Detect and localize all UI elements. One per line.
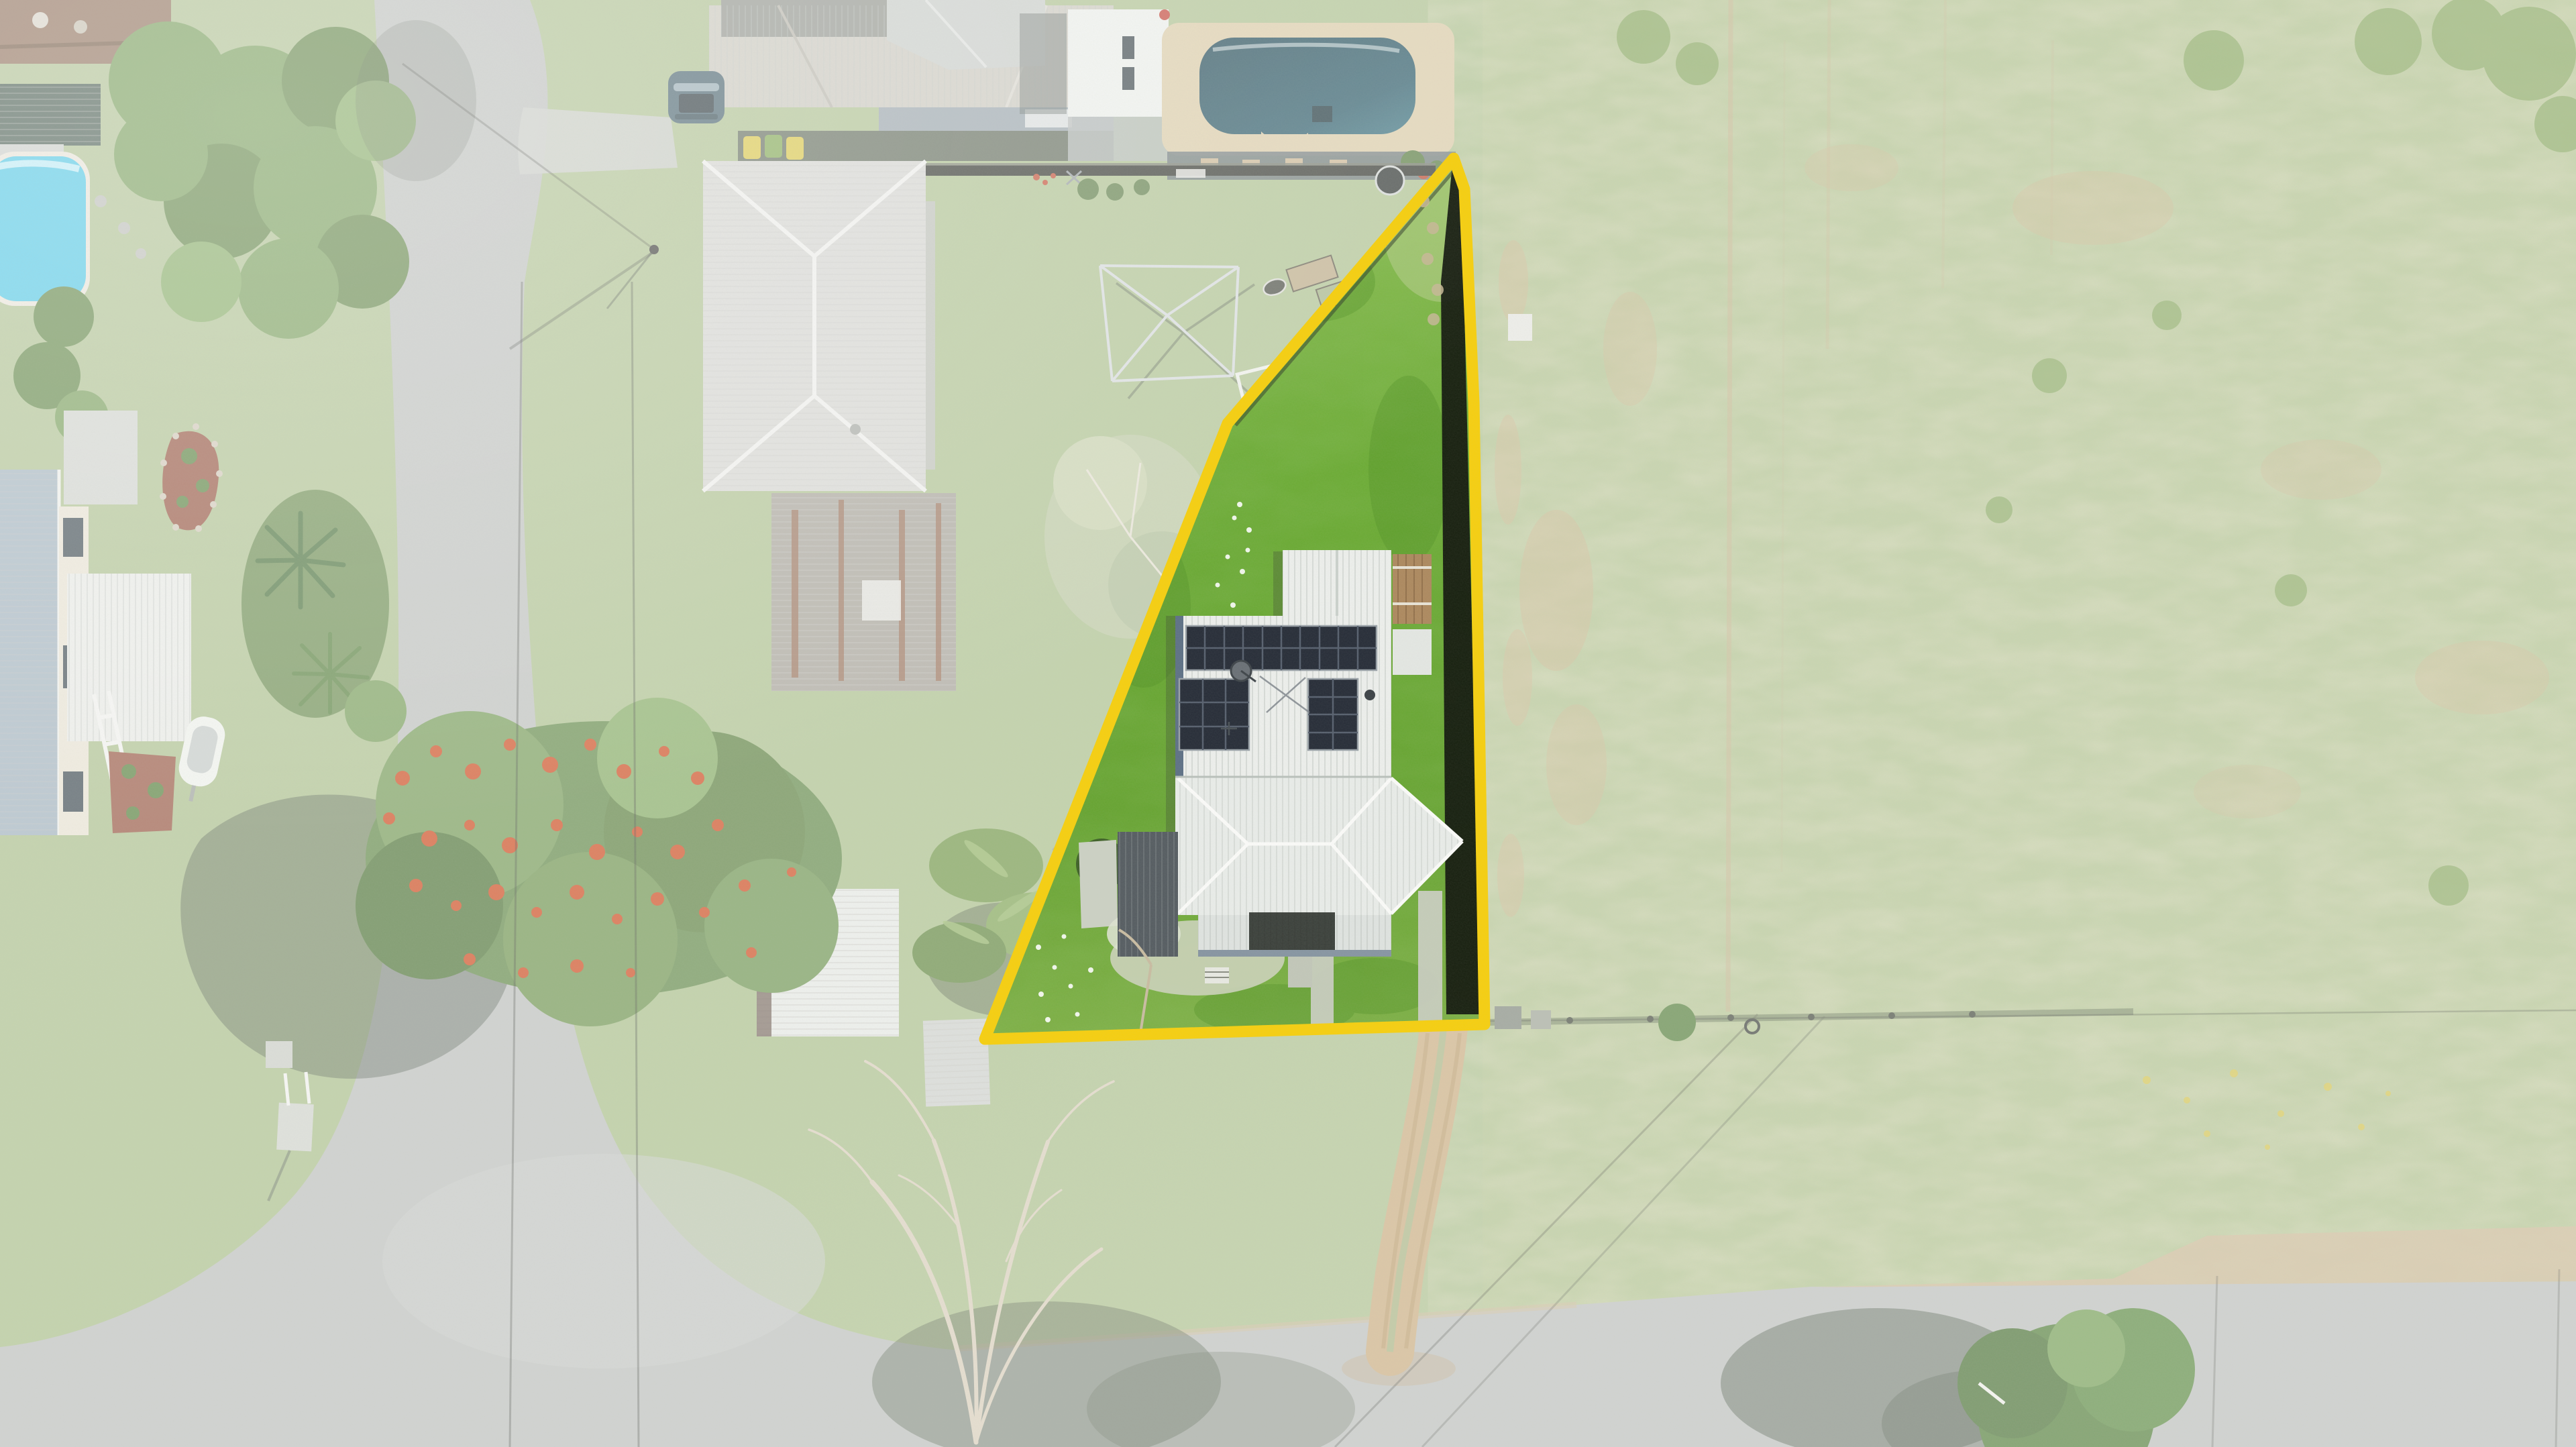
aerial-photo [0,0,2576,1447]
photo-grain [0,0,2576,1447]
